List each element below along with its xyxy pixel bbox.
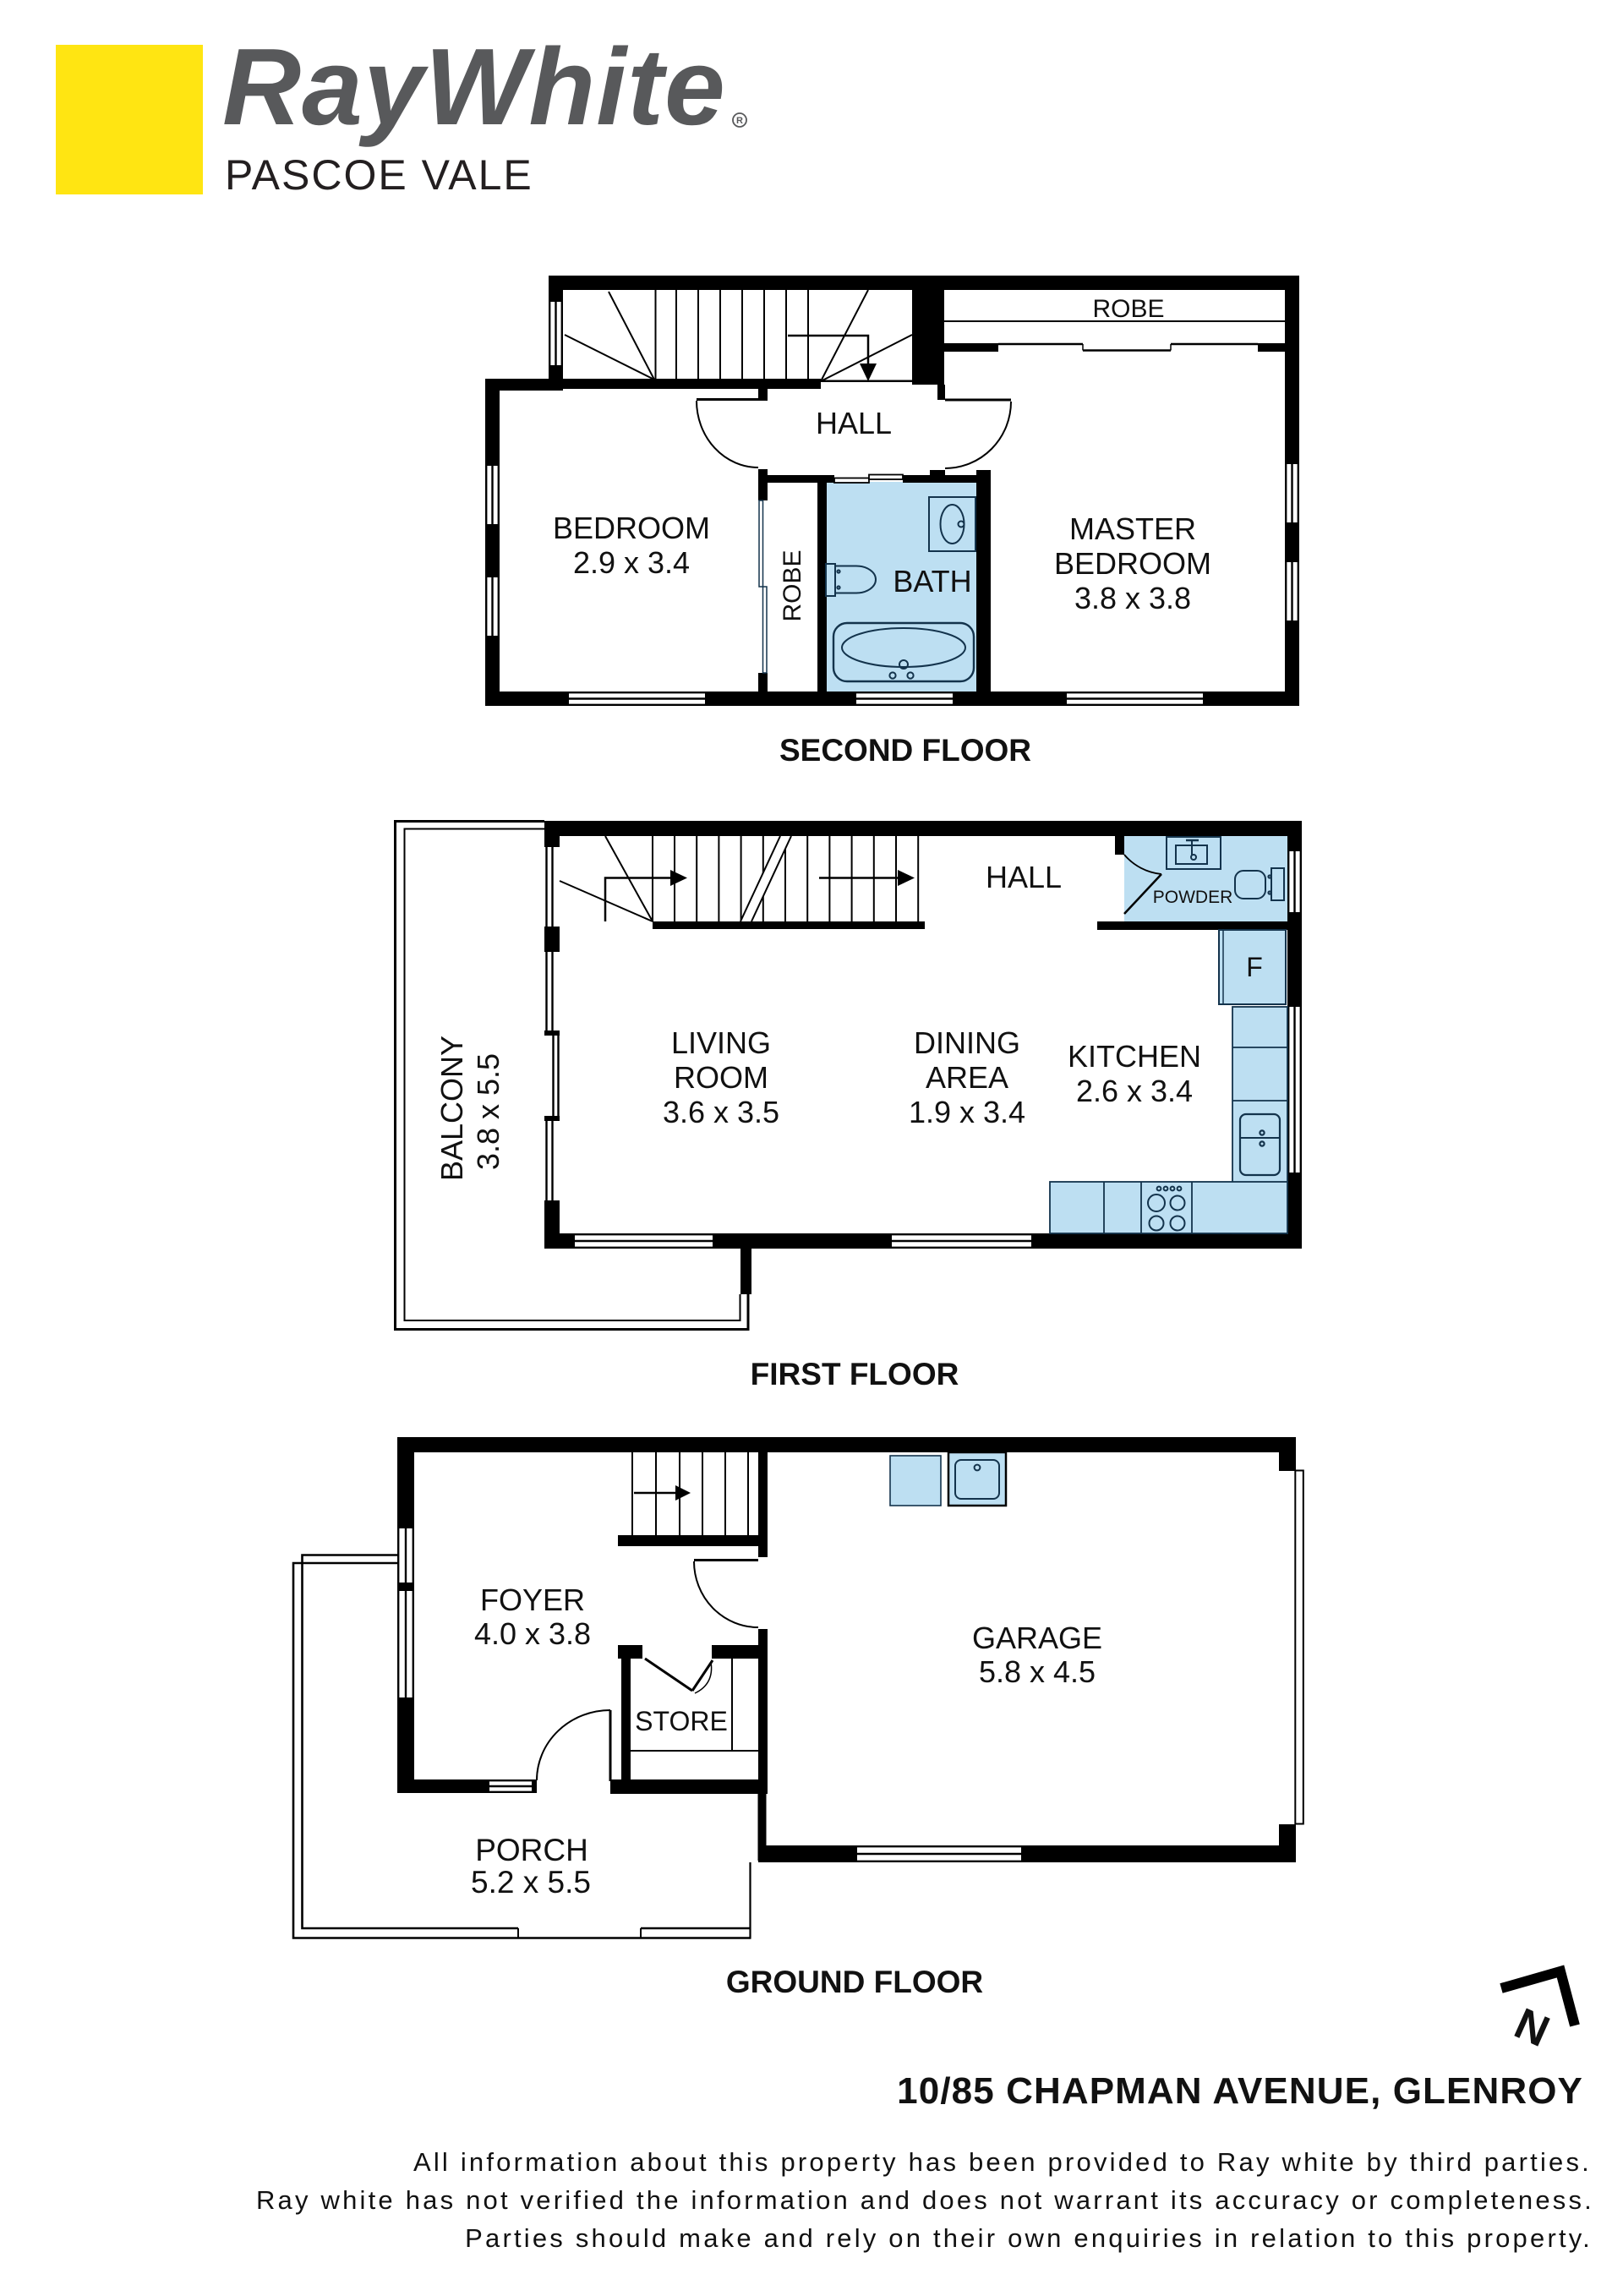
svg-text:HALL: HALL	[816, 406, 892, 440]
svg-text:3.6 x 3.5: 3.6 x 3.5	[663, 1095, 779, 1129]
svg-text:SECOND FLOOR: SECOND FLOOR	[779, 733, 1031, 768]
svg-text:PASCOE VALE: PASCOE VALE	[225, 151, 533, 199]
svg-text:F: F	[1246, 952, 1263, 982]
svg-text:GARAGE: GARAGE	[972, 1621, 1102, 1655]
svg-text:5.2 x 5.5: 5.2 x 5.5	[471, 1865, 591, 1900]
svg-text:FIRST FLOOR: FIRST FLOOR	[751, 1357, 959, 1391]
svg-text:BALCONY: BALCONY	[434, 1036, 469, 1181]
svg-text:2.9 x 3.4: 2.9 x 3.4	[573, 545, 690, 580]
svg-text:KITCHEN: KITCHEN	[1068, 1039, 1201, 1074]
svg-text:RayWhite: RayWhite	[222, 26, 726, 148]
svg-text:3.8 x 3.8: 3.8 x 3.8	[1074, 581, 1191, 615]
svg-text:FOYER: FOYER	[480, 1583, 585, 1617]
svg-text:5.8 x 4.5: 5.8 x 4.5	[979, 1654, 1096, 1689]
svg-text:Parties should make and rely o: Parties should make and rely on their ow…	[465, 2223, 1593, 2253]
svg-text:STORE: STORE	[635, 1706, 728, 1736]
svg-text:1.9 x 3.4: 1.9 x 3.4	[909, 1095, 1025, 1129]
svg-text:BATH: BATH	[893, 564, 971, 599]
svg-text:GROUND FLOOR: GROUND FLOOR	[726, 1965, 983, 1999]
svg-text:10/85 CHAPMAN AVENUE, GLENROY: 10/85 CHAPMAN AVENUE, GLENROY	[897, 2070, 1583, 2112]
svg-text:Ray white has not verified the: Ray white has not verified the informati…	[256, 2185, 1594, 2215]
svg-text:N: N	[1507, 1999, 1556, 2057]
svg-text:4.0 x 3.8: 4.0 x 3.8	[474, 1616, 591, 1651]
svg-text:ROBE: ROBE	[1092, 295, 1164, 323]
svg-text:3.8 x 5.5: 3.8 x 5.5	[471, 1053, 505, 1170]
svg-text:R: R	[736, 116, 743, 126]
svg-text:MASTER: MASTER	[1069, 511, 1196, 546]
svg-text:All information about this pro: All information about this property has …	[413, 2147, 1592, 2177]
svg-text:LIVING: LIVING	[671, 1025, 771, 1060]
svg-text:ROOM: ROOM	[674, 1060, 768, 1095]
svg-text:PORCH: PORCH	[475, 1833, 588, 1867]
svg-text:AREA: AREA	[926, 1060, 1008, 1095]
svg-text:DINING: DINING	[914, 1025, 1020, 1060]
svg-text:2.6 x 3.4: 2.6 x 3.4	[1076, 1074, 1193, 1108]
svg-text:BEDROOM: BEDROOM	[553, 511, 710, 545]
svg-text:POWDER: POWDER	[1153, 888, 1233, 907]
svg-text:ROBE: ROBE	[779, 549, 806, 621]
svg-text:BEDROOM: BEDROOM	[1054, 546, 1211, 581]
svg-text:HALL: HALL	[986, 860, 1062, 894]
